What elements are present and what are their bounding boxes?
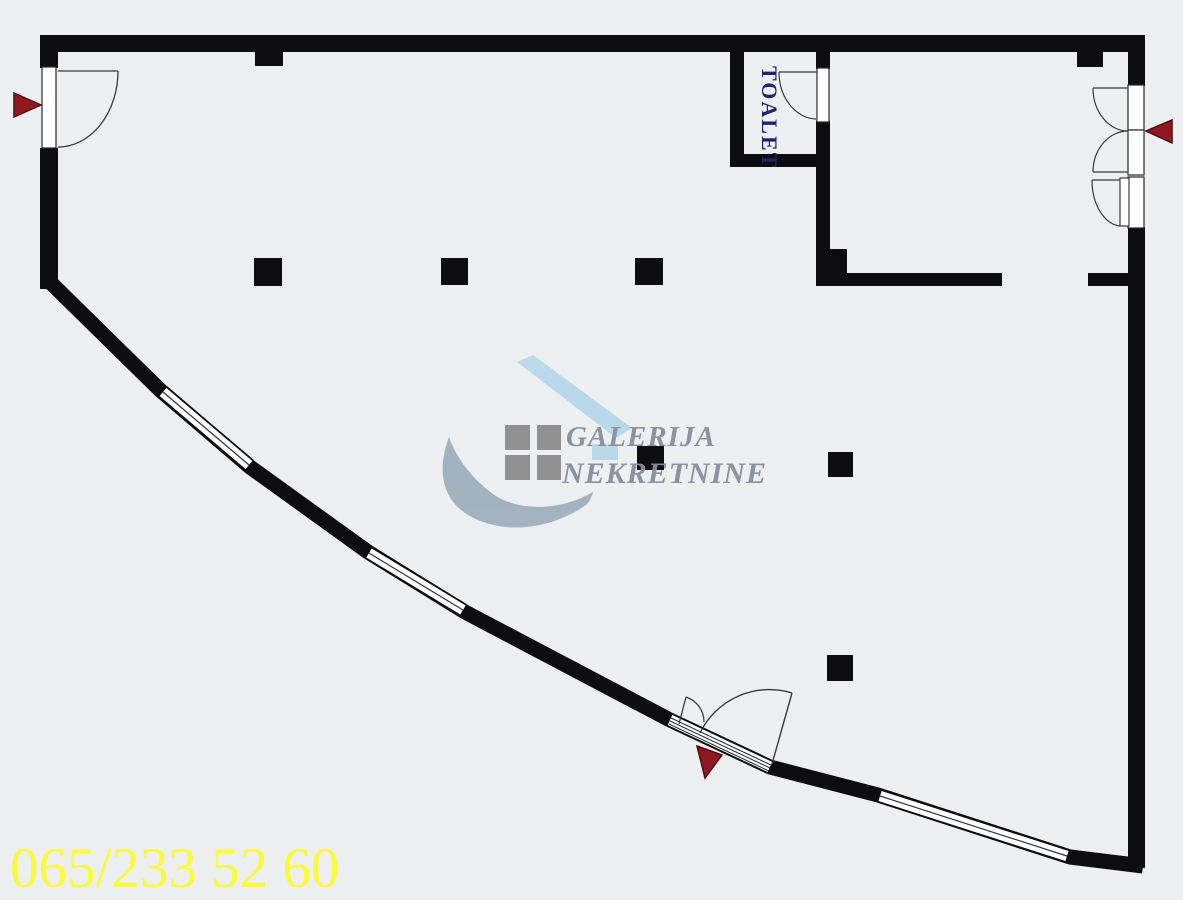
logo-square	[537, 455, 561, 480]
top-wall	[40, 35, 1145, 52]
toilet-left-wall	[730, 52, 744, 167]
column-marker	[828, 452, 853, 477]
door-leaf	[1128, 130, 1144, 175]
right-wall-lower	[1128, 227, 1145, 868]
door-leaf	[1128, 177, 1144, 228]
door-leaf-panel	[1120, 178, 1129, 226]
logo-square	[505, 425, 530, 450]
phone-number: 065/233 52 60	[10, 837, 339, 900]
left-wall-lower	[40, 148, 58, 289]
watermark-line1: GALERIJA	[566, 421, 716, 453]
pilaster-left	[255, 52, 283, 66]
partition-wall-stub	[816, 52, 830, 69]
floor-plan: GALERIJA NEKRETNINE TOALET 065/233 52 60	[0, 0, 1183, 900]
watermark-line2: NEKRETNINE	[561, 457, 767, 490]
door-leaf	[42, 67, 56, 148]
left-wall-upper	[40, 50, 58, 68]
storage-bottom-wall	[816, 273, 1002, 286]
logo-square	[537, 425, 561, 450]
toilet-label: TOALET	[757, 66, 782, 169]
floor-plan-canvas: GALERIJA NEKRETNINE TOALET 065/233 52 60	[0, 0, 1183, 900]
logo-square	[505, 455, 530, 480]
column-marker	[254, 258, 282, 286]
door-leaf	[1128, 85, 1144, 130]
column-marker	[827, 655, 853, 681]
column-marker	[635, 258, 663, 285]
storage-bottom-wall-stub	[1088, 273, 1144, 286]
column-marker	[441, 258, 468, 285]
pilaster-right	[1077, 52, 1103, 67]
door-leaf	[817, 68, 829, 122]
right-wall-upper	[1128, 35, 1145, 86]
